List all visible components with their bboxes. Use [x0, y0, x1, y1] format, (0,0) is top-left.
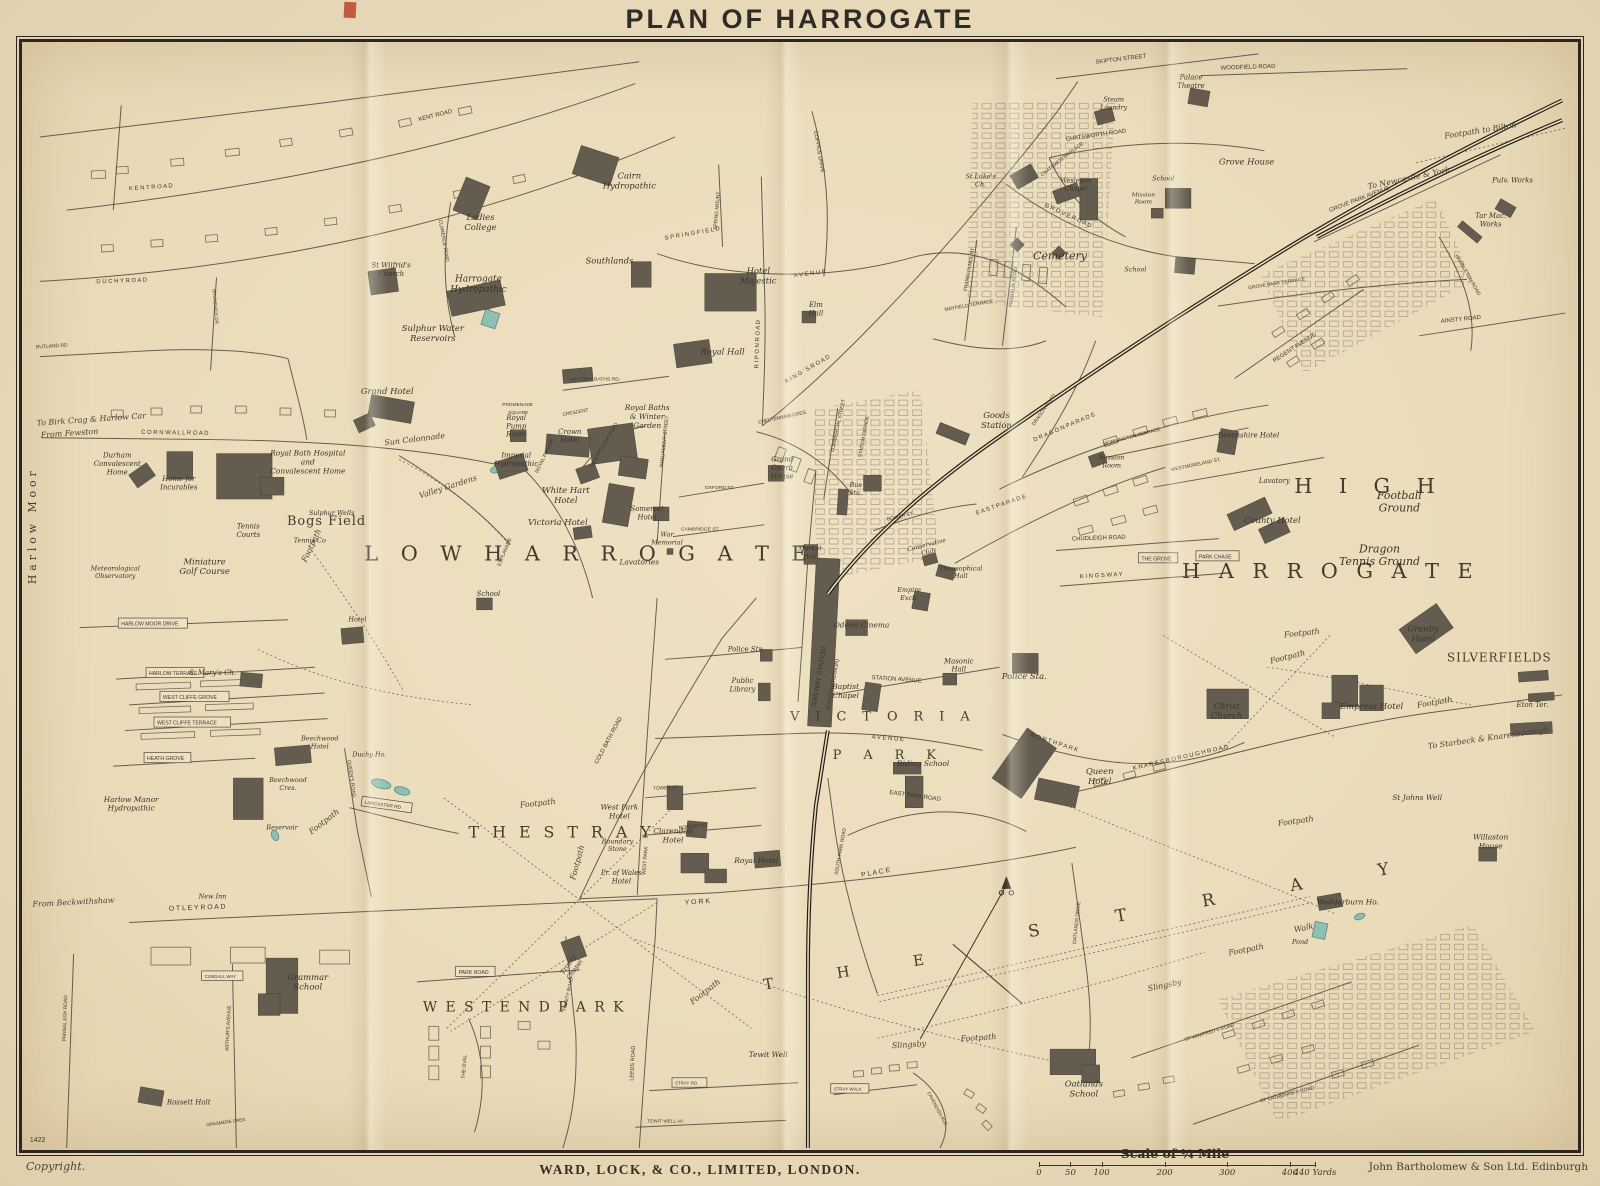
road-label: RUTLAND RD — [36, 342, 69, 350]
poi-label: FootballGround — [1376, 489, 1422, 514]
compass-scroll — [1009, 891, 1013, 895]
cartographer-credit: John Bartholomew & Son Ltd. Edinburgh — [1369, 1161, 1588, 1173]
road-label: WOODFIELD ROAD — [1221, 64, 1276, 72]
house-row — [907, 1062, 917, 1069]
poi-label: Pulv. Works — [1491, 176, 1533, 184]
house-row — [480, 1026, 490, 1038]
road-label: OXFORD ST. — [705, 485, 735, 491]
road-label: A V E N U E — [871, 734, 904, 743]
road-line — [761, 177, 765, 426]
footpath-line — [258, 649, 473, 704]
scale-tick — [1070, 1162, 1071, 1167]
road-line — [649, 1083, 798, 1091]
house-row — [225, 148, 240, 156]
poi-label: Sulphur Wells — [309, 509, 355, 517]
district-label: L O W H A R R O G A T E — [364, 541, 814, 565]
annotation-label: Sun Colonnade — [384, 431, 446, 447]
road-line — [113, 105, 121, 210]
road-label: GRASMERE CRES. — [206, 1117, 247, 1128]
building — [576, 463, 600, 485]
poi-label: BaptistChapel — [831, 682, 859, 700]
house-row — [151, 947, 191, 965]
road-label: CLARENCE ROAD — [437, 219, 450, 262]
road-label: K E N T R O A D — [129, 183, 173, 192]
poi-label: WarMemorial — [650, 531, 682, 547]
building — [1151, 208, 1163, 218]
house-row — [458, 106, 472, 115]
road-label: P L A C E — [861, 867, 891, 879]
poi-label: Cemetery — [1033, 250, 1088, 263]
map-sheet: PLAN OF HARROGATE L O W H A R R O G A T … — [0, 0, 1600, 1186]
boxed-road-label: WEST CLIFFE GROVE — [160, 691, 229, 701]
poi-label: Duchy Ho. — [351, 750, 386, 758]
house-row — [235, 406, 246, 413]
boxed-road-label: HEATH GROVE — [144, 753, 191, 763]
svg-text:WEST CLIFFE GROVE: WEST CLIFFE GROVE — [163, 695, 218, 701]
poi-label: Sulphur WaterReservoirs — [402, 323, 465, 343]
house-row — [518, 1021, 530, 1029]
building — [240, 672, 263, 688]
poi-label: GrandOperaHouse — [770, 455, 794, 480]
poi-label: Odeon Cinema — [834, 621, 890, 630]
map-paper: L O W H A R R O G A T EH I G HH A R R O … — [19, 39, 1581, 1153]
road-label: CAMBRIDGE ST. — [681, 527, 719, 533]
annotation-label: Footpath — [1283, 627, 1321, 640]
house-row — [339, 128, 353, 137]
scale-tick — [1227, 1162, 1228, 1167]
poi-label: Police Stn. — [727, 645, 765, 653]
poi-label: ElmHall — [808, 301, 824, 317]
boxed-road-label: HARLOW MOOR DRIVE — [118, 618, 187, 628]
road-line — [445, 202, 455, 337]
building — [705, 869, 727, 883]
road-label: WEST PARK — [641, 845, 650, 875]
building — [368, 395, 415, 424]
poi-label: PublicLibrary — [728, 677, 755, 693]
annotation-label: Footpath — [1415, 695, 1453, 710]
house-row — [398, 118, 411, 127]
house-row — [1272, 326, 1285, 337]
building — [1174, 257, 1195, 274]
road-label: VICTORIA BATHS RD. — [570, 376, 620, 382]
road-label: QUEEN'S ROAD — [346, 760, 357, 798]
poi-label: ImperialHydropathic — [493, 452, 538, 468]
road-line — [417, 970, 580, 982]
house-row — [429, 1026, 439, 1040]
house-row — [265, 227, 277, 235]
scale-tick-label: 0 — [1036, 1168, 1041, 1178]
scale-tick — [1039, 1162, 1040, 1167]
house-row — [1111, 515, 1126, 525]
house-row — [513, 174, 526, 183]
annotation-label: Footpath — [306, 807, 341, 837]
boxed-road-label: STRAY WALK — [831, 1084, 869, 1093]
house-row — [151, 240, 163, 248]
boxed-road-label: STRAY RD. — [672, 1078, 707, 1087]
building — [936, 422, 970, 445]
poi-label: County Hotel — [1244, 515, 1301, 525]
building — [1457, 221, 1482, 244]
road-label: TEWIT WELL AV. — [647, 1118, 684, 1124]
poi-label: DragonTennis Ground — [1339, 542, 1420, 567]
annotation-label: Footpath — [1268, 648, 1306, 666]
house-row — [136, 682, 191, 690]
building — [138, 1087, 164, 1107]
house-row — [889, 1065, 899, 1072]
road-label: K I N G S W A Y — [1080, 572, 1123, 580]
poi-label: School — [477, 590, 501, 598]
road-line — [67, 84, 636, 211]
annotation-label: Footpath — [687, 977, 722, 1007]
scale-tick-label: 300 — [1219, 1168, 1235, 1178]
poi-label: ChristChurch — [1211, 701, 1242, 721]
svg-text:WEST CLIFFE TERRACE: WEST CLIFFE TERRACE — [157, 721, 217, 727]
poi-label: St Wilfrid'sChurch — [372, 262, 412, 278]
poi-label: Police Sta. — [1001, 671, 1047, 681]
building — [631, 262, 651, 288]
poi-label: GrammarSchool — [287, 972, 329, 992]
boxed-road-label: CUNDALL WAY — [202, 971, 243, 980]
house-row — [1113, 1090, 1125, 1098]
svg-text:CUNDALL WAY: CUNDALL WAY — [205, 974, 236, 979]
svg-text:PARK ROAD: PARK ROAD — [459, 970, 489, 976]
poi-label: Victoria Hotel — [528, 517, 588, 527]
road-line — [1049, 695, 1562, 798]
house-row — [116, 166, 128, 174]
house-row — [1143, 505, 1158, 515]
poi-label: BoundaryStone — [601, 837, 634, 853]
reservoir — [1312, 921, 1328, 939]
district-label: T H E — [762, 946, 955, 994]
road-label: GROVE PARK AVENUE — [1328, 185, 1390, 214]
housing-block — [1218, 924, 1536, 1122]
annotation-label: Slingsby — [1147, 977, 1183, 993]
poi-label: TennisCourts — [236, 523, 260, 539]
road-label: K I N G ' S R O A D — [784, 354, 831, 385]
poi-label: MasonicHall — [943, 657, 974, 673]
boxed-road-label: PARK ROAD — [456, 966, 495, 976]
district-label: SILVERFIELDS — [1447, 650, 1552, 664]
poi-label: LadiesCollege — [464, 212, 496, 232]
district-label: Harlow Moor — [26, 467, 39, 584]
poi-label: Eton Ter. — [1516, 701, 1549, 709]
svg-text:STRAY WALK: STRAY WALK — [834, 1087, 862, 1092]
road-label: E A S T P A R A D E — [975, 494, 1027, 517]
road-line — [639, 899, 657, 1148]
poi-label: ClarendonHotel — [653, 826, 692, 844]
scale-tick — [1102, 1162, 1103, 1167]
building — [258, 994, 280, 1016]
house-row — [280, 408, 291, 415]
house-row — [853, 1071, 863, 1078]
district-label: H A R R O G A T E — [1182, 559, 1479, 583]
map-canvas: L O W H A R R O G A T EH I G HH A R R O … — [22, 42, 1578, 1150]
plate-number: 1422 — [30, 1137, 46, 1144]
house-row — [205, 703, 253, 711]
road-label: ARTHUR'S AVENUE — [224, 1005, 232, 1052]
building — [618, 456, 648, 479]
district-label: S T R A Y — [1026, 852, 1425, 941]
district-label: W E S T E N D P A R K — [423, 1000, 626, 1016]
building — [233, 778, 263, 820]
poi-label: Lavatory — [1258, 477, 1290, 485]
scale-tick-label: 100 — [1094, 1168, 1110, 1178]
poi-label: EmpireExch. — [896, 586, 921, 602]
footpath-line — [635, 939, 1072, 1065]
scale-tick — [1315, 1162, 1316, 1167]
house-row — [324, 217, 337, 225]
house-row — [210, 729, 260, 737]
poi-label: Home forIncurables — [159, 475, 198, 491]
building — [837, 489, 849, 515]
house-row — [101, 245, 113, 252]
poi-label: BeechwoodCres. — [268, 776, 307, 792]
poi-label: West ParkHotel — [601, 803, 639, 821]
building — [1322, 703, 1340, 719]
poi-label: Tar Mac.Works — [1475, 212, 1506, 228]
road-label: PANNAL ASH ROAD — [62, 995, 70, 1042]
house-row — [976, 1103, 987, 1113]
road-label: SKIPTON STREET — [1095, 54, 1147, 66]
pond — [1354, 912, 1366, 921]
road-label: R I P O N R O A D — [754, 320, 762, 369]
building — [864, 475, 882, 491]
railway-line-inner — [828, 100, 1562, 594]
annotation-label: To Birk Crag & Harlow Car — [36, 411, 147, 428]
poi-label: WesleyanChapel — [1060, 176, 1091, 192]
scale-tick — [1290, 1162, 1291, 1167]
house-row — [325, 410, 336, 417]
building — [573, 526, 592, 540]
compass-needle — [953, 944, 1022, 1003]
poi-label: GranbyHotel — [1408, 624, 1440, 644]
annotation-label: From Beckwithshaw — [31, 896, 115, 909]
annotation-label: Footpath — [518, 797, 556, 810]
road-line — [848, 812, 1027, 836]
district-label: H I G H — [1294, 474, 1445, 498]
scale-bar: Scale of ¼ Mile 050100200300400440 Yards — [1035, 1146, 1335, 1182]
annotation-label: To Newcastle & York — [1367, 165, 1451, 191]
reservoir — [481, 309, 500, 329]
house-row — [280, 138, 293, 147]
building — [943, 673, 957, 685]
house-row — [871, 1068, 881, 1075]
house-row — [1163, 1076, 1175, 1084]
poi-label: Lavatories — [618, 557, 659, 566]
poi-label: Royal Hall — [699, 347, 745, 357]
road-label: CHUDLEIGH ROAD — [1072, 535, 1126, 543]
annotation-label: Walk — [1293, 922, 1314, 935]
building — [476, 598, 492, 610]
building — [1518, 670, 1548, 682]
house-row — [982, 1120, 993, 1130]
house-row — [1103, 485, 1118, 496]
poi-label: Devonshire Hotel — [1217, 432, 1279, 440]
poi-label: CrownHotel — [558, 428, 581, 444]
poi-label: School — [1152, 175, 1174, 183]
poi-label: Pr. of WalesHotel — [600, 869, 643, 885]
poi-label: Wedderburn Ho. — [1317, 898, 1379, 907]
road-label: ST WINIFRED'S ROAD — [1184, 1022, 1236, 1043]
road-line — [40, 350, 288, 359]
annotation-label: Footpath to Bilton — [1443, 120, 1517, 140]
poi-label: MissionRoom — [1098, 453, 1124, 469]
footpath-line — [1163, 636, 1334, 737]
road-line — [723, 598, 757, 638]
scale-tick-label: 50 — [1065, 1168, 1076, 1178]
road-label: BRUNSWICK DR. — [212, 289, 220, 325]
poi-label: OatlandsSchool — [1065, 1079, 1104, 1099]
svg-text:THE GROVE: THE GROVE — [1141, 556, 1172, 562]
poi-label: GoodsStation — [981, 410, 1012, 430]
poi-label: Hotel — [347, 616, 366, 624]
red-mark — [344, 2, 357, 19]
house-row — [1138, 1083, 1150, 1091]
poi-label: Royal Hotel — [733, 856, 779, 865]
road-label: Y O R K — [685, 898, 711, 907]
road-label: THE OVAL — [461, 1054, 469, 1079]
scale-tick-label: 200 — [1156, 1168, 1172, 1178]
poi-label: MiniatureGolf Course — [179, 556, 230, 576]
annotation-label: Footpath — [568, 844, 586, 882]
building — [862, 682, 882, 712]
road-label: AINSTY ROAD — [1441, 315, 1482, 325]
pond — [393, 785, 410, 797]
poi-label: School — [1124, 266, 1146, 274]
poi-label: Empress Hotel — [1339, 701, 1404, 711]
scale-tick-label: 440 Yards — [1294, 1168, 1337, 1178]
annotation-label: Valley Gardens — [418, 473, 478, 500]
building — [1034, 778, 1079, 808]
railway-line — [828, 100, 1562, 594]
poi-label: HotelMajestic — [739, 266, 777, 286]
annotation-label: Footpath — [1227, 942, 1265, 958]
building — [341, 627, 364, 645]
poi-label: QueenHotel — [1086, 766, 1114, 786]
house-row — [230, 947, 265, 963]
annotation-label: Footpath — [959, 1032, 996, 1044]
house-row — [480, 1046, 490, 1058]
road-line — [40, 62, 639, 137]
road-label: KENT ROAD — [418, 109, 453, 123]
poi-label: Grove House — [1219, 157, 1274, 167]
building — [1188, 88, 1210, 107]
district-label: V I C T O R I A — [789, 710, 976, 725]
road-label: D U C H Y R O A D — [96, 278, 147, 286]
road-line — [67, 954, 74, 1148]
house-row — [151, 408, 162, 415]
map-frame: L O W H A R R O G A T EH I G HH A R R O … — [16, 36, 1584, 1156]
house-row — [320, 950, 350, 964]
poi-label: Pond — [1291, 938, 1308, 946]
annotation-label: Footpath — [1276, 814, 1314, 828]
copyright-note: Copyright. — [26, 1160, 85, 1173]
road-label: STATION AVENUE — [871, 675, 922, 684]
poi-label: WillastonHouse — [1473, 832, 1508, 850]
poi-label: White HartHotel — [542, 485, 590, 505]
road-label: CRESCENT — [562, 407, 589, 417]
road-line — [288, 359, 307, 440]
house-row — [389, 204, 402, 213]
poi-label: HarrogateHydropathic — [449, 274, 506, 294]
svg-text:HARLOW MOOR DRIVE: HARLOW MOOR DRIVE — [121, 622, 179, 628]
house-row — [538, 1041, 550, 1049]
poi-label: MissionRoom — [1131, 191, 1156, 205]
house-row — [171, 158, 184, 166]
poi-label: RoyalPumpRoom — [505, 414, 527, 439]
house-row — [964, 1089, 975, 1099]
poi-label: New Inn — [198, 893, 227, 901]
poi-label: Rossett Holt — [166, 1099, 211, 1107]
scale-label: Scale of ¼ Mile — [1035, 1146, 1315, 1161]
road-line — [1022, 341, 1095, 478]
road-label: COLD BATH ROAD — [594, 716, 624, 765]
poi-label: Southlands — [586, 256, 635, 266]
road-label: COPPICE DRIVE — [812, 130, 825, 173]
scale-line — [1039, 1165, 1315, 1166]
road-label: CHELTENHAM CRES. — [757, 410, 807, 426]
publisher-imprint: WARD, LOCK, & CO., LIMITED, LONDON. — [539, 1162, 860, 1178]
road-line — [933, 339, 1046, 349]
scale-tick — [1165, 1162, 1166, 1167]
boxed-road-label: WEST CLIFFE TERRACE — [154, 717, 231, 727]
house-row — [429, 1046, 439, 1060]
poi-label: MeteorologicalObservatory — [90, 564, 140, 580]
road-label: ROYAL PARADE — [534, 437, 556, 474]
house-row — [1078, 525, 1093, 535]
railway-line-inner — [808, 731, 828, 1148]
house-row — [1287, 356, 1300, 367]
poi-label: BusSta. — [848, 481, 862, 497]
boxed-road-label: PARK CHASE — [1196, 551, 1239, 561]
building — [274, 745, 311, 766]
road-label: O T L E Y R O A D — [169, 904, 226, 913]
annotation-label: To Starbeck & Knaresborough — [1427, 725, 1549, 751]
house-row — [191, 406, 202, 413]
house-row — [1163, 416, 1178, 426]
building — [260, 477, 284, 495]
house-row — [429, 1066, 439, 1080]
svg-text:HEATH GROVE: HEATH GROVE — [147, 756, 185, 762]
road-label: A V E N U E — [793, 269, 826, 279]
svg-text:STRAY RD.: STRAY RD. — [675, 1081, 698, 1086]
road-label: WESTMORELAND ST. — [1170, 457, 1221, 473]
poi-label: Royal Bath HospitalandConvalescent Home — [269, 449, 346, 476]
house-row — [91, 170, 105, 179]
poi-label: Tewit Well — [749, 1050, 789, 1059]
house-row — [205, 235, 217, 243]
svg-text:PARK CHASE: PARK CHASE — [1199, 554, 1232, 560]
compass-north-point — [1001, 876, 1011, 889]
poi-label: Riding School — [896, 759, 950, 768]
boxed-road-label: THE GROVE — [1138, 553, 1177, 563]
poi-label: S. Mary's Ch. — [189, 669, 236, 677]
poi-label: Reservoir — [265, 823, 298, 831]
boxed-road-label: LANCASTER RD. — [361, 796, 412, 813]
building — [758, 683, 770, 701]
house-row — [141, 732, 195, 740]
house-row — [1237, 1064, 1250, 1073]
page-title: PLAN OF HARROGATE — [0, 4, 1600, 35]
poi-label: Harlow ManorHydropathic — [103, 795, 159, 813]
road-label: PROMENADE — [502, 402, 533, 408]
building — [1165, 188, 1191, 208]
poi-label: PalaceTheatre — [1177, 74, 1205, 90]
annotation-label: Slingsby — [892, 1039, 927, 1050]
road-label: C O R N W A L L R O A D — [141, 430, 208, 437]
pond — [370, 777, 391, 791]
poi-label: SteamLaundry — [1099, 95, 1128, 111]
